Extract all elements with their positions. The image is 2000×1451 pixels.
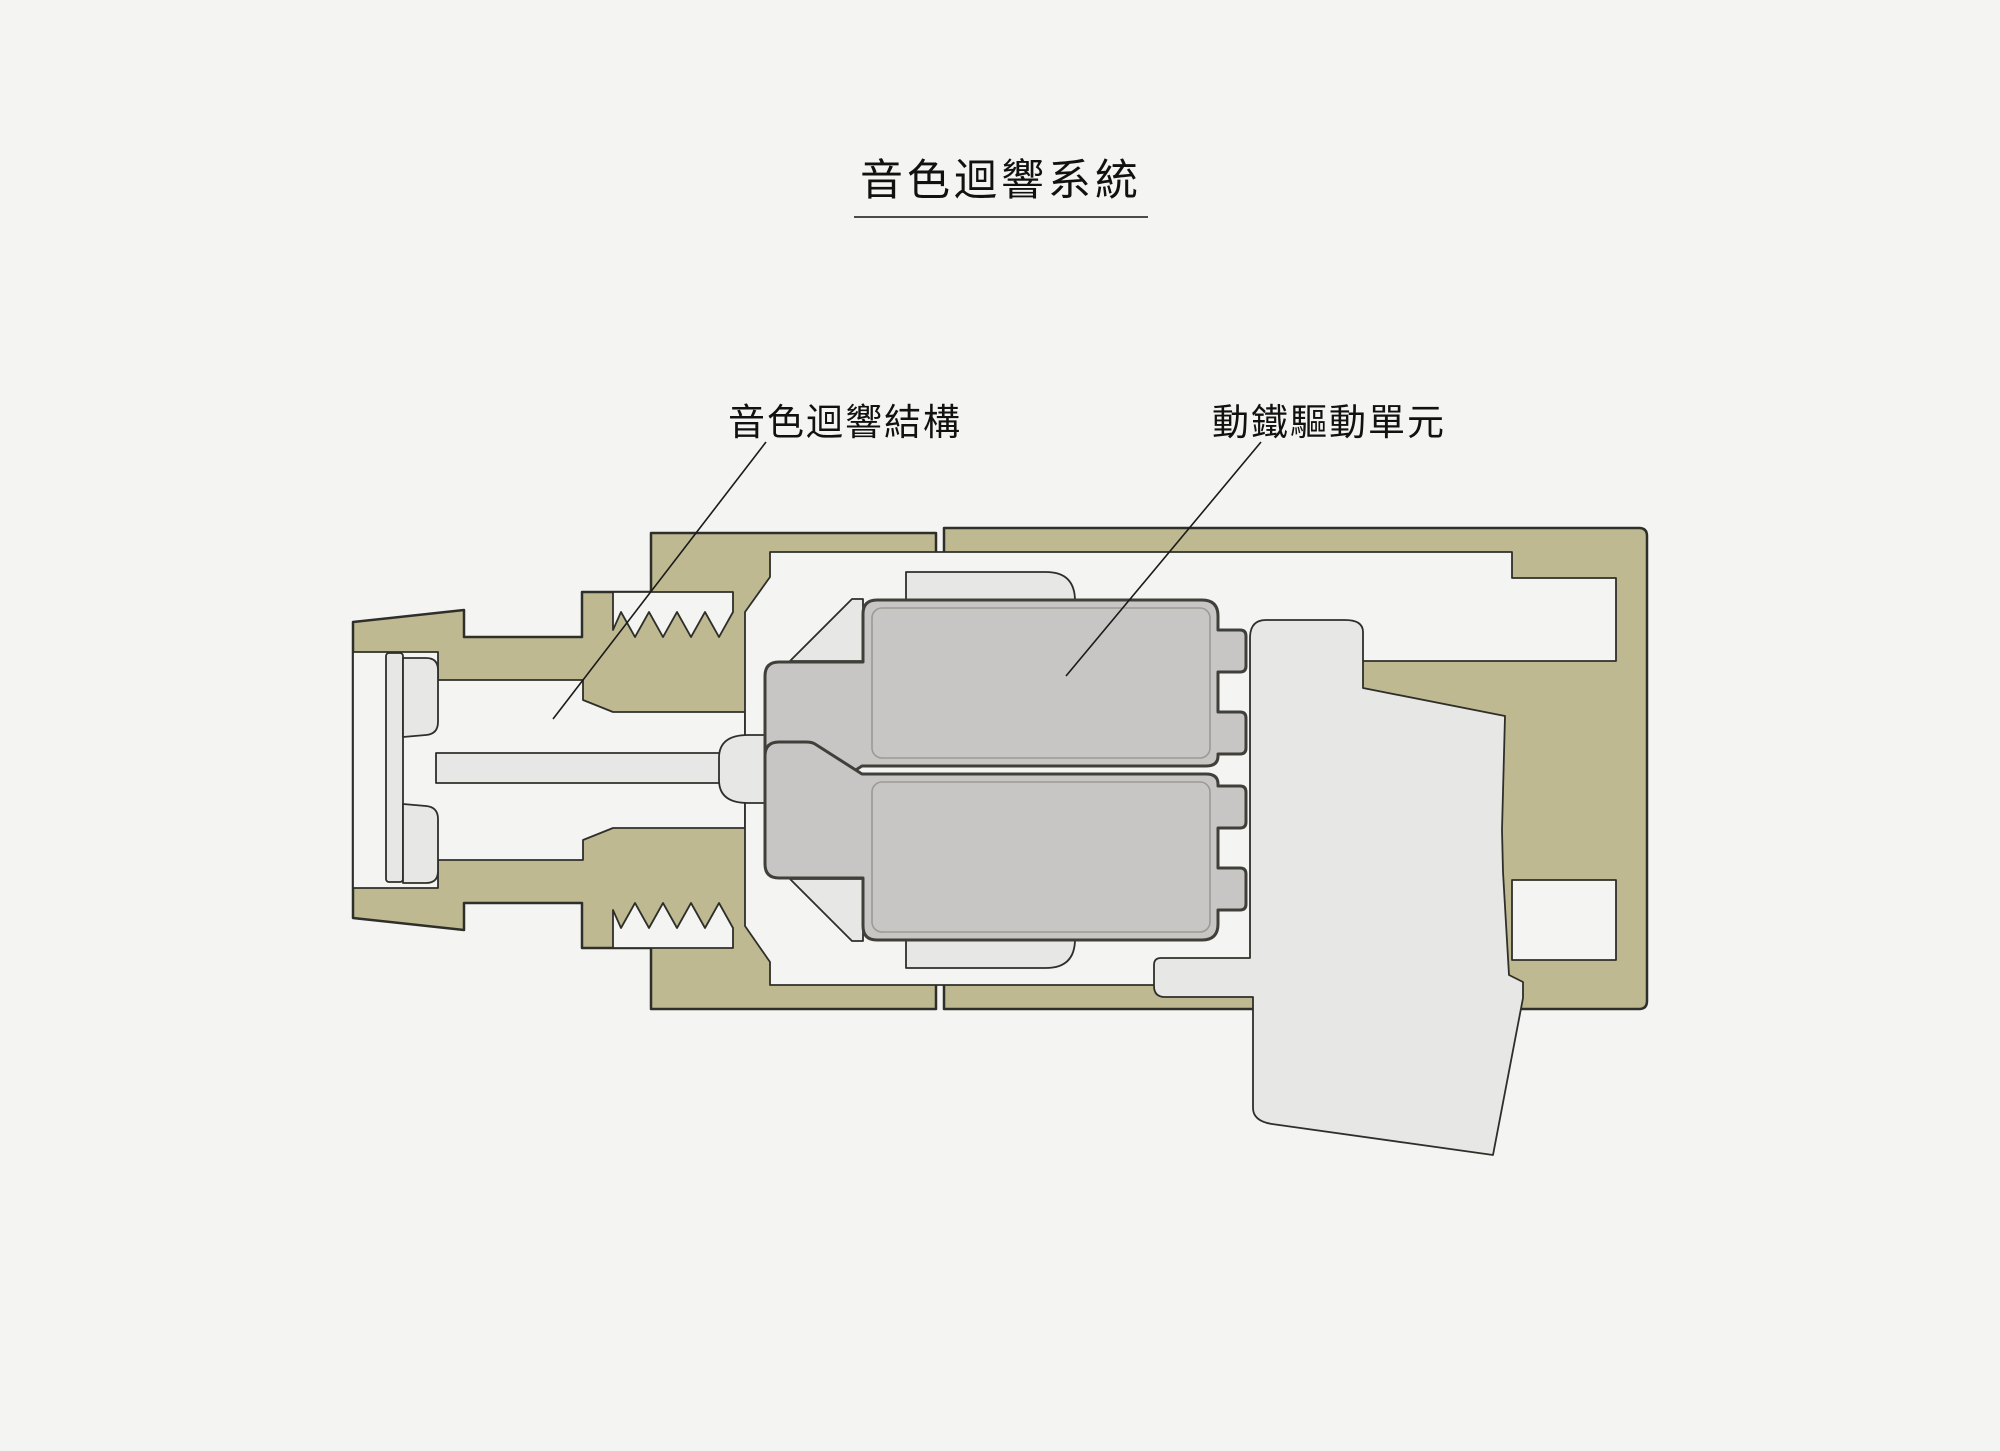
diagram-canvas: 音色迴響系統 音色迴響結構 動鐵驅動單元: [0, 0, 2000, 1451]
mesh-block-top: [403, 658, 438, 737]
mesh-block-bottom: [403, 804, 438, 883]
rear-vent-notch: [1512, 880, 1616, 960]
mesh-plate: [386, 653, 403, 882]
label-ba-driver-unit: 動鐵驅動單元: [1212, 392, 1446, 446]
page-title-text: 音色迴響系統: [854, 146, 1148, 218]
sound-tube: [436, 753, 742, 783]
page-title: 音色迴響系統: [854, 146, 1148, 218]
label-resonance-structure: 音色迴響結構: [728, 392, 962, 446]
